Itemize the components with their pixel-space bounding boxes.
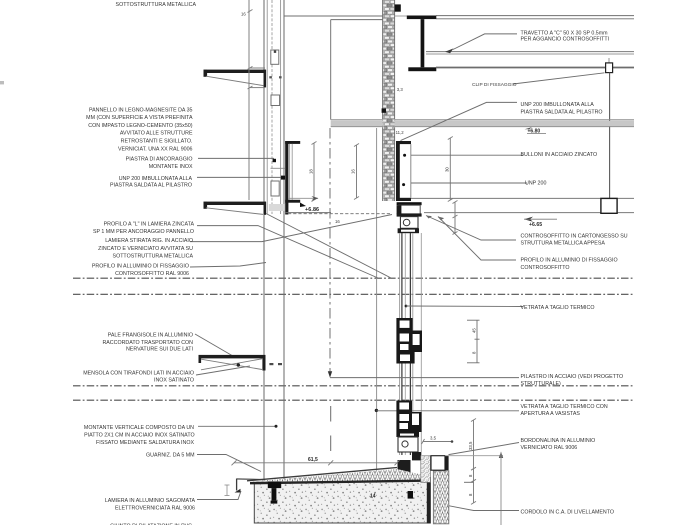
- svg-text:LAMIERA IN ALLUMINIO SAGOMATA: LAMIERA IN ALLUMINIO SAGOMATA: [105, 498, 196, 504]
- svg-text:3,5: 3,5: [430, 436, 437, 441]
- svg-text:+6.65: +6.65: [529, 222, 542, 228]
- svg-text:CON IMPASTO LEGNO-CEMENTO (35x: CON IMPASTO LEGNO-CEMENTO (35x50): [88, 123, 192, 129]
- svg-text:PER AGGANCIO CONTROSOFFITTI: PER AGGANCIO CONTROSOFFITTI: [521, 37, 610, 43]
- svg-text:PROFILO IN ALLUMINIO DI FISSAG: PROFILO IN ALLUMINIO DI FISSAGGIO: [521, 258, 618, 264]
- svg-text:18: 18: [308, 169, 313, 174]
- svg-text:UNP 200 IMBULLONATA ALLA: UNP 200 IMBULLONATA ALLA: [521, 102, 595, 108]
- svg-text:CONTROSOFFITTO IN CARTONGESSO: CONTROSOFFITTO IN CARTONGESSO SU: [521, 233, 628, 239]
- svg-text:RETROSTANTI E SIGILLATO.: RETROSTANTI E SIGILLATO.: [121, 139, 193, 145]
- svg-text:PANNELLO IN LEGNO-MAGNESITE DA: PANNELLO IN LEGNO-MAGNESITE DA 35: [89, 107, 193, 113]
- svg-text:PALE FRANGISOLE IN ALLUMINIO: PALE FRANGISOLE IN ALLUMINIO: [108, 333, 193, 339]
- svg-text:ZINCATO E VERNICIATO AVVITATA: ZINCATO E VERNICIATO AVVITATA SU: [98, 246, 193, 252]
- svg-text:NERVATURE SUI DUE LATI: NERVATURE SUI DUE LATI: [126, 347, 193, 353]
- svg-text:BORDONALINA IN ALLUMINIO: BORDONALINA IN ALLUMINIO: [521, 438, 596, 444]
- svg-text:GUARNIZ. DA 5 MM: GUARNIZ. DA 5 MM: [146, 453, 195, 459]
- svg-text:UNP 200: UNP 200: [525, 181, 546, 187]
- svg-text:TRAVETTO A "C" 50 X 30 SP 0.5m: TRAVETTO A "C" 50 X 30 SP 0.5mm: [521, 30, 609, 36]
- svg-text:AVVITATO ALLE STRUTTURE: AVVITATO ALLE STRUTTURE: [120, 131, 193, 137]
- svg-text:33,5: 33,5: [468, 441, 473, 450]
- svg-text:INOX SATINATO: INOX SATINATO: [154, 377, 194, 383]
- svg-text:STRUTTURA METALLICA APPESA: STRUTTURA METALLICA APPESA: [521, 241, 606, 247]
- svg-text:VETRATA A TAGLIO TERMICO: VETRATA A TAGLIO TERMICO: [521, 305, 595, 311]
- svg-text:16: 16: [241, 12, 246, 17]
- svg-text:61,5: 61,5: [308, 457, 318, 463]
- svg-text:16: 16: [351, 169, 356, 174]
- svg-text:PIASTRA SALDATA AL PILASTRO: PIASTRA SALDATA AL PILASTRO: [110, 183, 192, 189]
- svg-text:3,3: 3,3: [397, 87, 404, 92]
- svg-text:PIASTRA DI ANCORAGGIO: PIASTRA DI ANCORAGGIO: [126, 157, 193, 163]
- svg-text:UNP 200 IMBULLONATA ALLA: UNP 200 IMBULLONATA ALLA: [119, 176, 193, 182]
- svg-text:CLIP DI FISSAGGIO: CLIP DI FISSAGGIO: [472, 82, 517, 88]
- svg-text:16: 16: [335, 219, 340, 224]
- svg-text:VERNICIATO RAL 9006: VERNICIATO RAL 9006: [521, 445, 578, 451]
- svg-text:11,2: 11,2: [396, 130, 405, 135]
- svg-text:SOTTOSTRUTTURA METALLICA: SOTTOSTRUTTURA METALLICA: [116, 2, 197, 8]
- svg-text:MONTANTE VERTICALE COMPOSTO DA: MONTANTE VERTICALE COMPOSTO DA UN: [84, 425, 194, 431]
- svg-text:RACCORDATO TRASPORTATO CON: RACCORDATO TRASPORTATO CON: [102, 340, 193, 346]
- svg-text:CORDOLO IN C.A. DI LIVELLAMENT: CORDOLO IN C.A. DI LIVELLAMENTO: [521, 509, 615, 515]
- svg-text:CONTROSOFFITTO RAL 9006: CONTROSOFFITTO RAL 9006: [115, 271, 189, 277]
- svg-text:30: 30: [445, 167, 450, 172]
- svg-text:ELETTROVERNICIATA RAL 9006: ELETTROVERNICIATA RAL 9006: [115, 506, 195, 512]
- svg-text:14: 14: [370, 494, 376, 500]
- svg-text:PIASTRA SALDATA AL PILASTRO: PIASTRA SALDATA AL PILASTRO: [521, 109, 603, 115]
- svg-text:LAMIERA STIRATA RIG. IN ACCIAI: LAMIERA STIRATA RIG. IN ACCIAIO: [105, 238, 193, 244]
- svg-text:MENSOLA CON TIRAFONDI LATI IN: MENSOLA CON TIRAFONDI LATI IN ACCIAIO: [83, 371, 194, 377]
- svg-text:CONTROSOFFITTO: CONTROSOFFITTO: [521, 265, 570, 271]
- svg-text:PROFILO IN ALLUMINIO DI FISSAG: PROFILO IN ALLUMINIO DI FISSAGGIO: [92, 264, 189, 270]
- svg-text:VERNICIAT. UNA XX RAL 9006: VERNICIAT. UNA XX RAL 9006: [118, 146, 193, 152]
- svg-text:MM (CON SUPERFICIE A VISTA PRE: MM (CON SUPERFICIE A VISTA PREFINITA: [86, 115, 193, 121]
- svg-text:SOTTOSTRUTTURA METALLICA: SOTTOSTRUTTURA METALLICA: [113, 254, 194, 260]
- svg-text:PILASTRO IN ACCIAIO (VEDI PROG: PILASTRO IN ACCIAIO (VEDI PROGETTO: [521, 374, 624, 380]
- svg-text:PROFILO A "L" IN LAMIERA ZINCA: PROFILO A "L" IN LAMIERA ZINCATA: [104, 222, 195, 228]
- svg-text:MONTANTE INOX: MONTANTE INOX: [149, 164, 193, 170]
- svg-text:STRUTTURALE): STRUTTURALE): [521, 381, 562, 387]
- svg-text:45: 45: [472, 328, 477, 333]
- svg-text:+6.86: +6.86: [305, 207, 319, 213]
- svg-text:PIATTO 2X1 CM IN ACCIAIO INOX: PIATTO 2X1 CM IN ACCIAIO INOX SATINATO: [84, 432, 194, 438]
- svg-text:VETRATA A TAGLIO TERMICO CON: VETRATA A TAGLIO TERMICO CON: [521, 404, 608, 410]
- svg-text:BULLONI IN ACCIAIO ZINCATO: BULLONI IN ACCIAIO ZINCATO: [521, 152, 598, 158]
- svg-text:SP 1 MM PER ANCORAGGIO PANNELL: SP 1 MM PER ANCORAGGIO PANNELLO: [93, 229, 194, 235]
- svg-text:APERTURA A VASISTAS: APERTURA A VASISTAS: [521, 411, 581, 417]
- svg-text:FISSATO MEDIANTE SALDATURA INO: FISSATO MEDIANTE SALDATURA INOX: [96, 440, 194, 446]
